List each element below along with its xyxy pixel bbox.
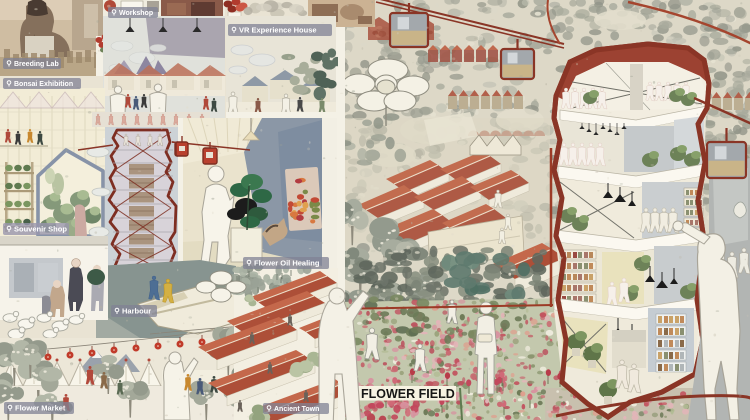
svg-text:VR Experience House: VR Experience House — [239, 26, 317, 35]
svg-text:FLOWER FIELD: FLOWER FIELD — [361, 387, 455, 401]
svg-text:Breeding Lab: Breeding Lab — [14, 61, 59, 68]
svg-text:Ancient Town: Ancient Town — [274, 406, 319, 413]
svg-text:Workshop: Workshop — [119, 10, 153, 17]
svg-text:Flower Market: Flower Market — [15, 404, 66, 413]
svg-text:Souvenir Shop: Souvenir Shop — [14, 225, 67, 234]
svg-text:Bonsai Exhibition: Bonsai Exhibition — [14, 81, 73, 88]
svg-text:Harbour: Harbour — [122, 307, 151, 316]
svg-text:Flower Oil Healing: Flower Oil Healing — [254, 259, 320, 268]
